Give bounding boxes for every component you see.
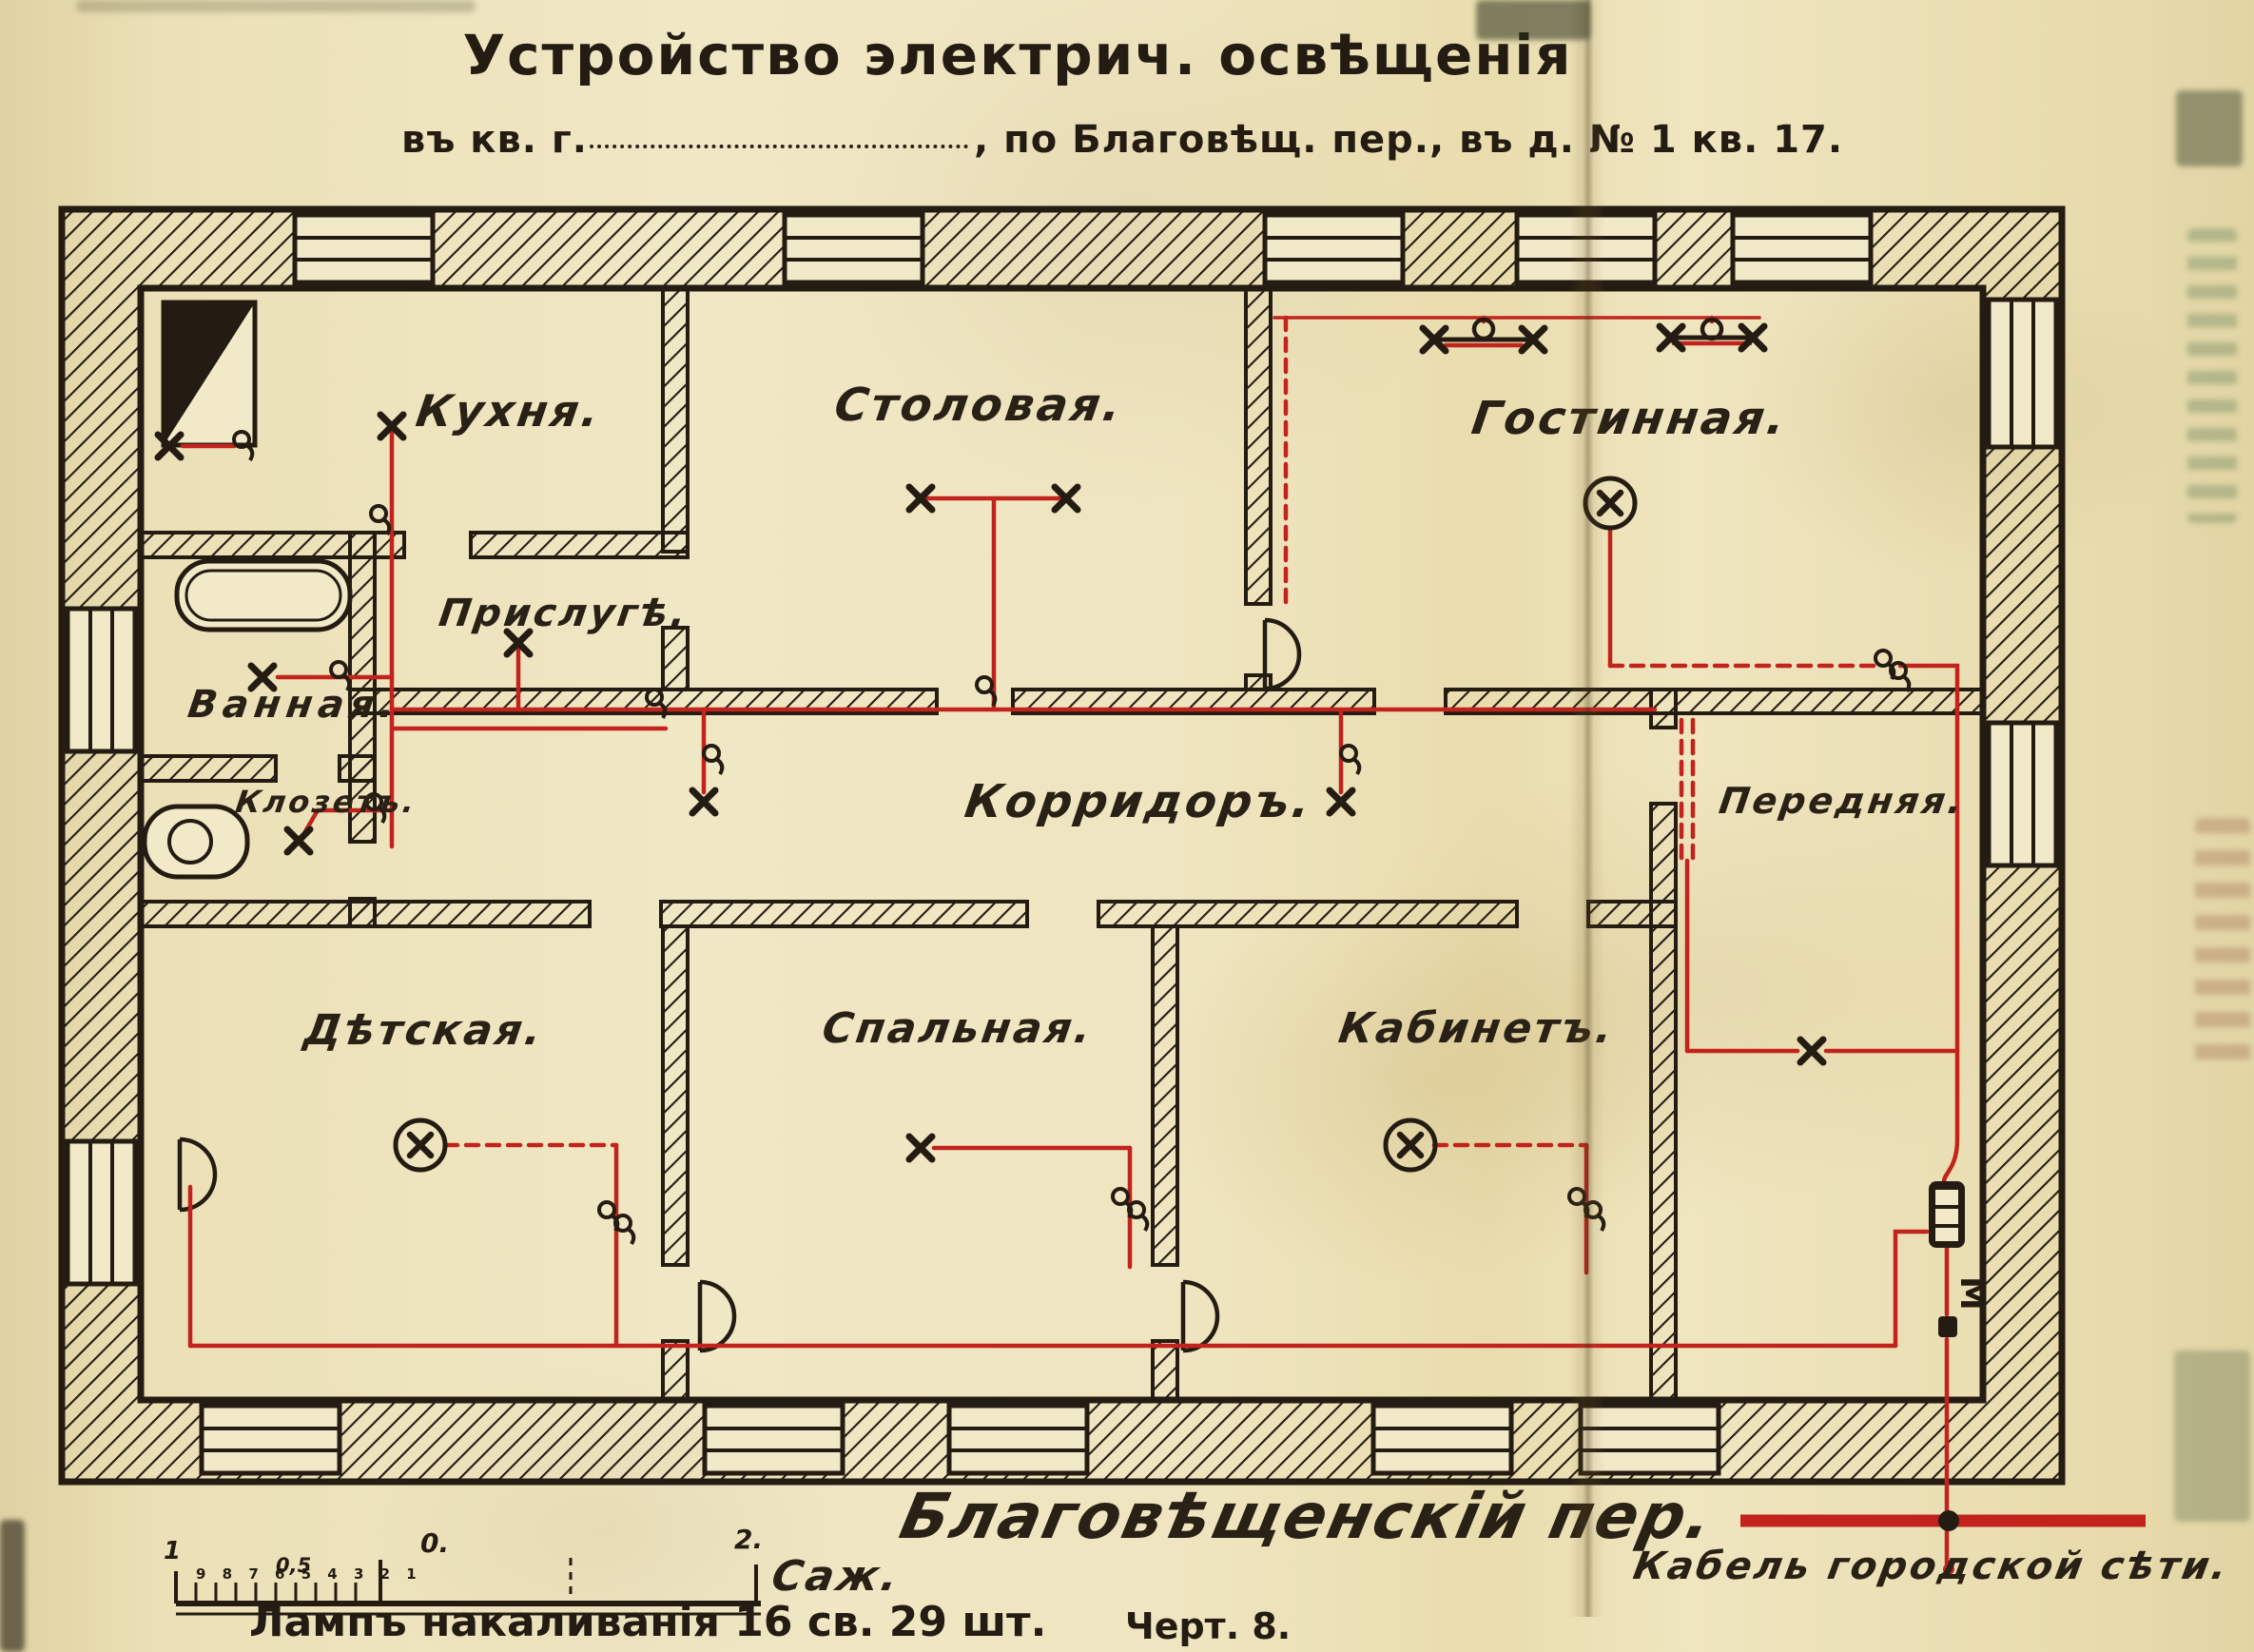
ceiling-lamp-icon xyxy=(396,1120,445,1170)
window xyxy=(1989,300,2056,447)
room-label-hall: Передняя. xyxy=(1717,780,1968,822)
ceiling-lamp-icon xyxy=(1585,478,1635,528)
room-label-bath: Ванная. xyxy=(185,683,403,727)
window xyxy=(295,215,433,282)
window xyxy=(1581,1406,1719,1473)
lamp-count-note: Лампъ накаливанія 16 св. 29 шт. xyxy=(249,1598,1046,1646)
scale-label-two: 2. xyxy=(734,1524,763,1555)
room-label-bedroom: Спальная. xyxy=(819,1004,1097,1053)
room-label-study: Кабинетъ. xyxy=(1335,1004,1618,1053)
living-feed-wire xyxy=(1900,666,1957,1181)
city-cable-label: Кабель городской сѣти. xyxy=(1630,1545,2233,1588)
lamp-icon xyxy=(909,1137,932,1159)
lamp-icon xyxy=(1800,1040,1823,1062)
room-label-servants: Прислугѣ. xyxy=(437,592,691,635)
door-arc xyxy=(700,1282,734,1351)
window xyxy=(1265,215,1403,282)
window xyxy=(202,1406,340,1473)
window xyxy=(785,215,923,282)
cable-junction-blob xyxy=(1938,1510,1959,1531)
switch-icon xyxy=(704,746,722,774)
room-label-kitchen: Кухня. xyxy=(413,385,605,437)
scale-unit-label: Саж. xyxy=(768,1552,904,1601)
room-label-dining: Столовая. xyxy=(831,379,1127,432)
window xyxy=(68,609,135,751)
ceiling-lamp-icon xyxy=(1386,1120,1435,1170)
window xyxy=(1373,1406,1511,1473)
room-label-corridor: Корридоръ. xyxy=(962,775,1316,828)
window xyxy=(949,1406,1087,1473)
scale-tick-digits: 9 8 7 6 5 4 3 2 1 xyxy=(196,1565,419,1583)
switch-icon xyxy=(371,506,389,534)
meter-terminal xyxy=(1938,1316,1957,1337)
switch-icon xyxy=(1341,746,1359,774)
meter-label: М xyxy=(1953,1276,1992,1311)
room-label-wc: Клозетъ. xyxy=(233,784,419,820)
stove xyxy=(164,302,255,445)
room-label-nursery: Дѣтская. xyxy=(301,1006,547,1055)
window xyxy=(1517,215,1655,282)
drawing-number: Черт. 8. xyxy=(1125,1605,1291,1647)
meter-feed-wire xyxy=(1895,1232,1927,1346)
window xyxy=(1989,723,2056,865)
street-label: Благовѣщенскій пер. xyxy=(894,1480,1720,1553)
window xyxy=(68,1141,135,1284)
window xyxy=(1733,215,1871,282)
scanned-drawing-page: Устройство электрич. освѣщенія въ кв. г.… xyxy=(0,0,2254,1652)
scale-label-one: 1 xyxy=(164,1537,181,1565)
toilet xyxy=(145,807,247,877)
window xyxy=(705,1406,843,1473)
room-label-living: Гостинная. xyxy=(1468,392,1791,445)
interior-walls xyxy=(141,288,1983,1400)
scale-label-zero: 0. xyxy=(420,1527,449,1559)
lamp-icon xyxy=(287,829,310,852)
door-arc xyxy=(1183,1282,1217,1351)
bathtub xyxy=(177,561,350,630)
door-arc xyxy=(180,1139,215,1210)
